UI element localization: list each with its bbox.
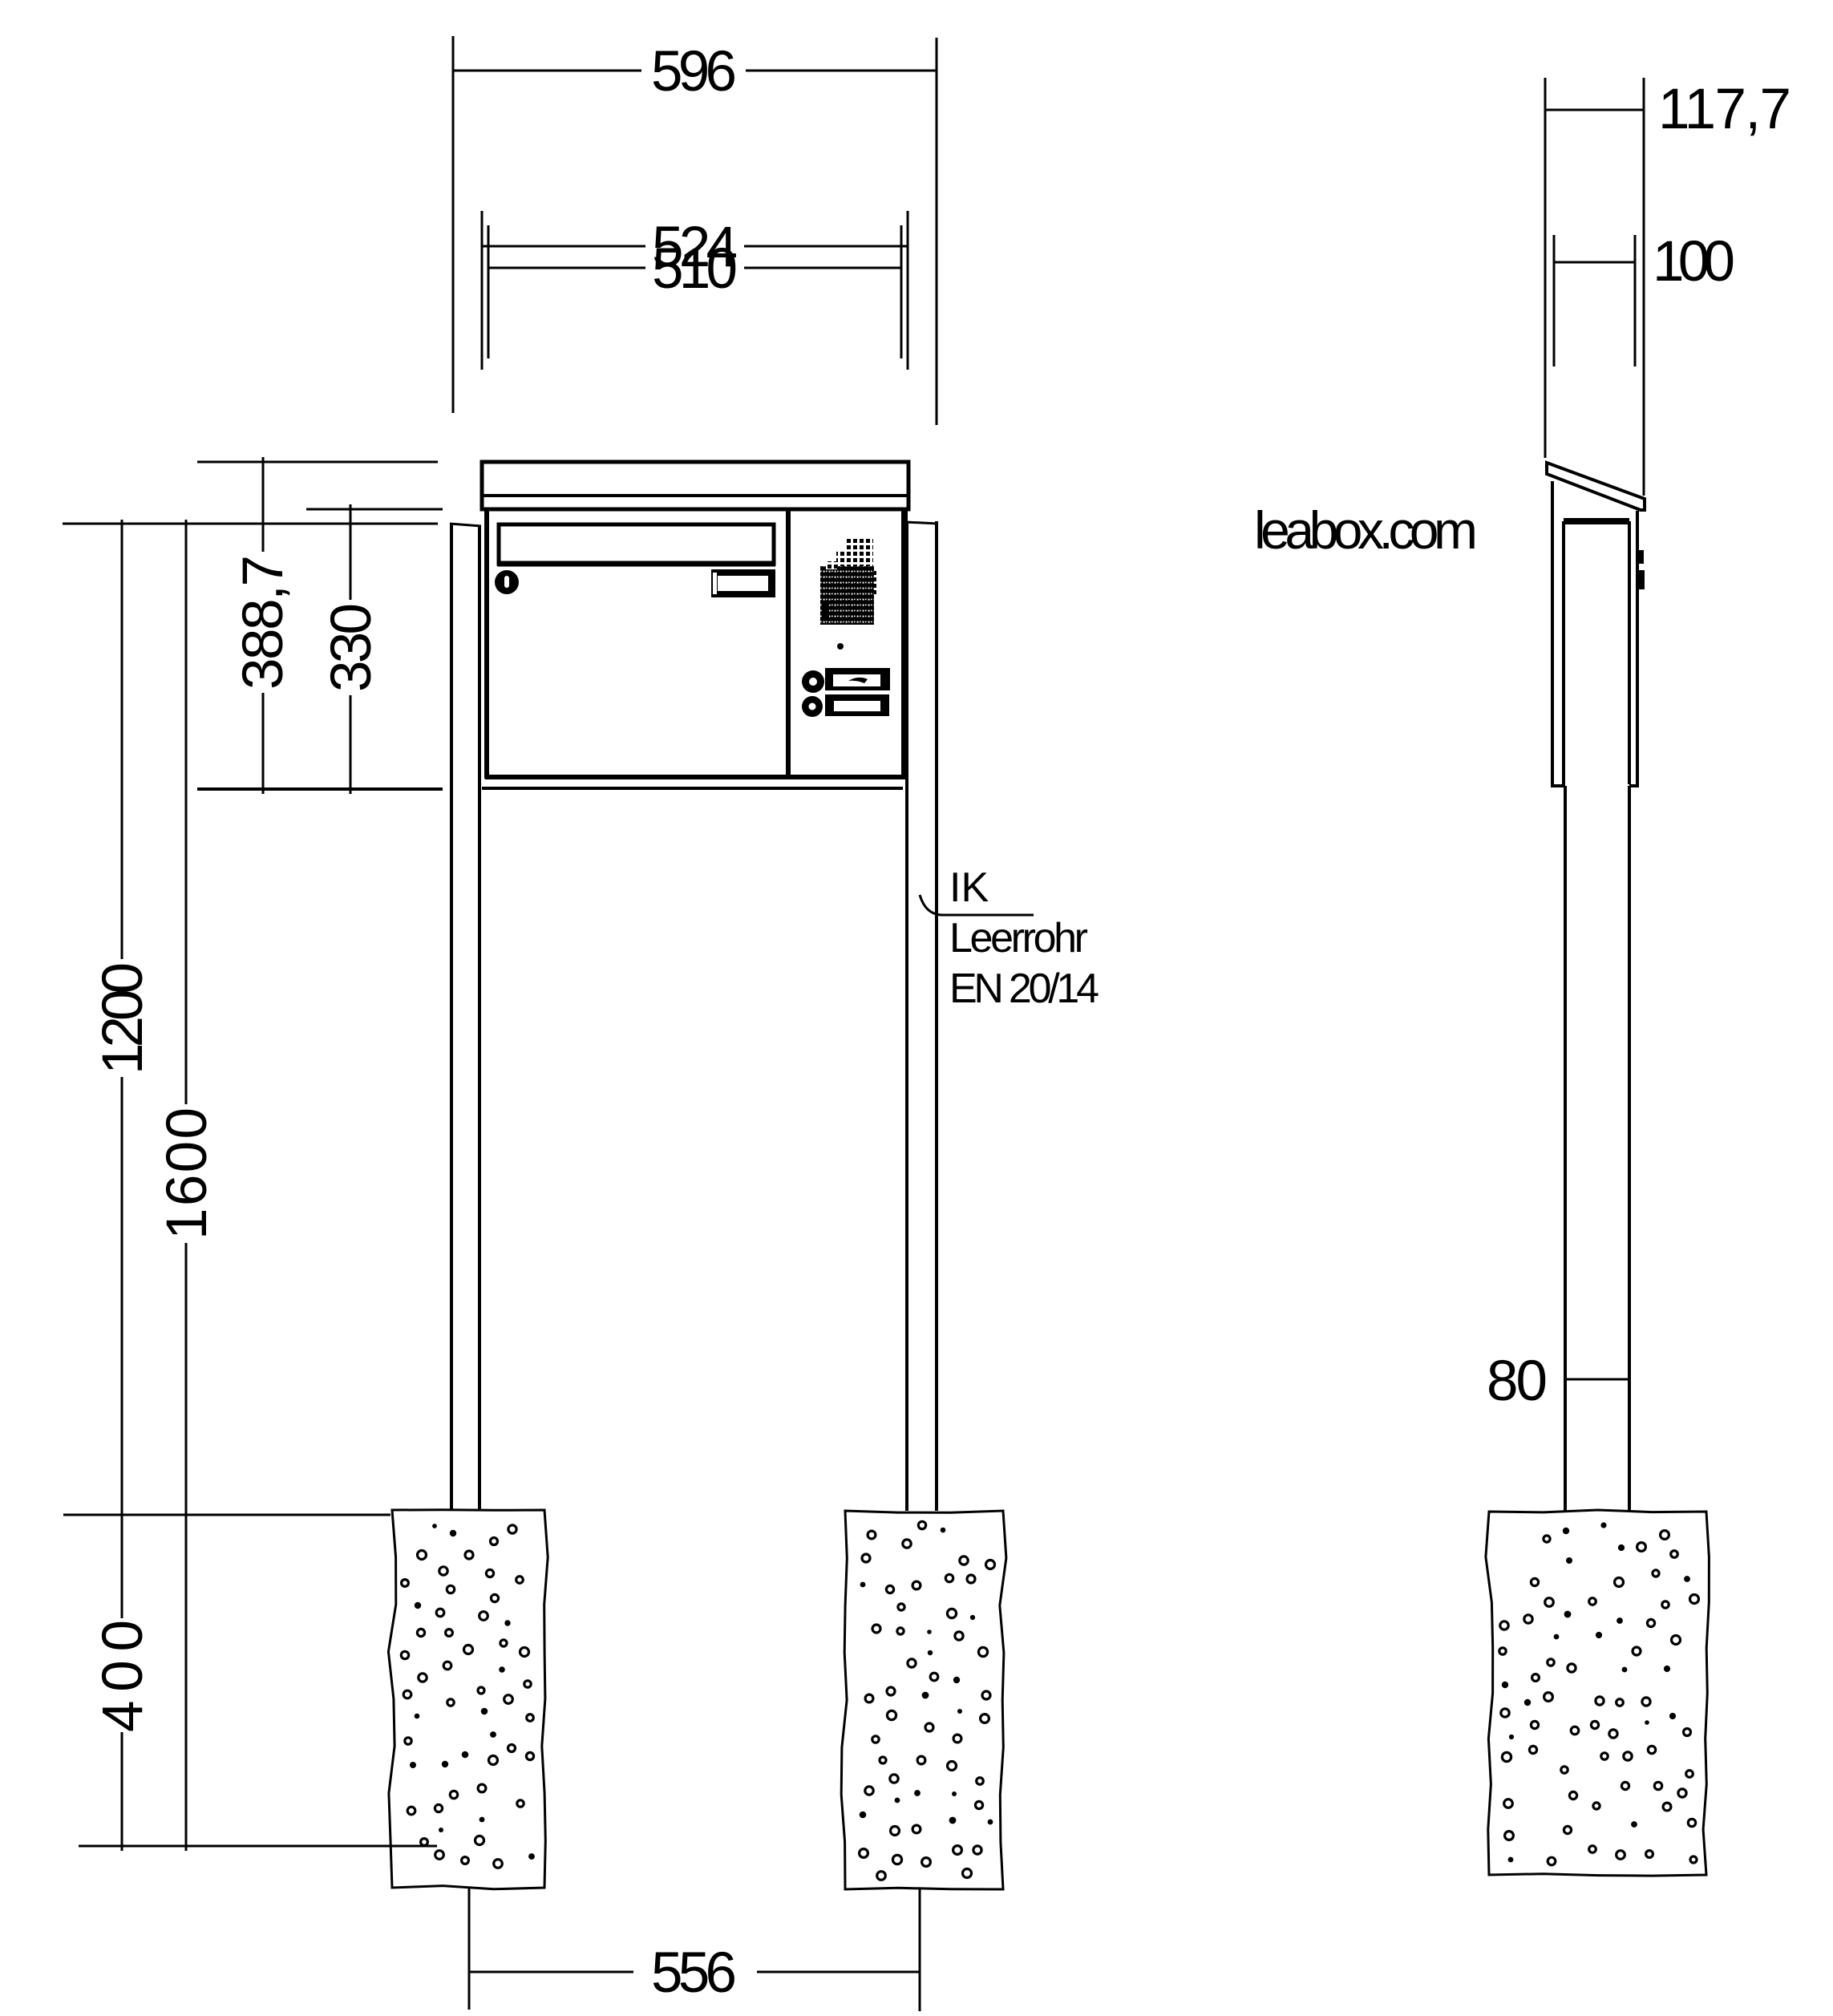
svg-text:117,7: 117,7 — [1658, 78, 1791, 141]
svg-text:330: 330 — [320, 603, 383, 692]
svg-text:Leerrohr: Leerrohr — [949, 915, 1088, 961]
svg-text:388,7: 388,7 — [232, 555, 295, 690]
svg-text:510: 510 — [652, 237, 738, 301]
svg-text:EN 20/14: EN 20/14 — [949, 965, 1099, 1012]
svg-text:1200: 1200 — [91, 962, 155, 1075]
svg-text:400: 400 — [91, 1620, 155, 1732]
svg-text:IK: IK — [949, 864, 989, 911]
svg-text:80: 80 — [1487, 1350, 1548, 1413]
svg-text:100: 100 — [1653, 230, 1735, 293]
svg-text:leabox.com: leabox.com — [1254, 500, 1478, 560]
svg-text:596: 596 — [651, 40, 737, 103]
svg-text:556: 556 — [651, 1941, 737, 2005]
